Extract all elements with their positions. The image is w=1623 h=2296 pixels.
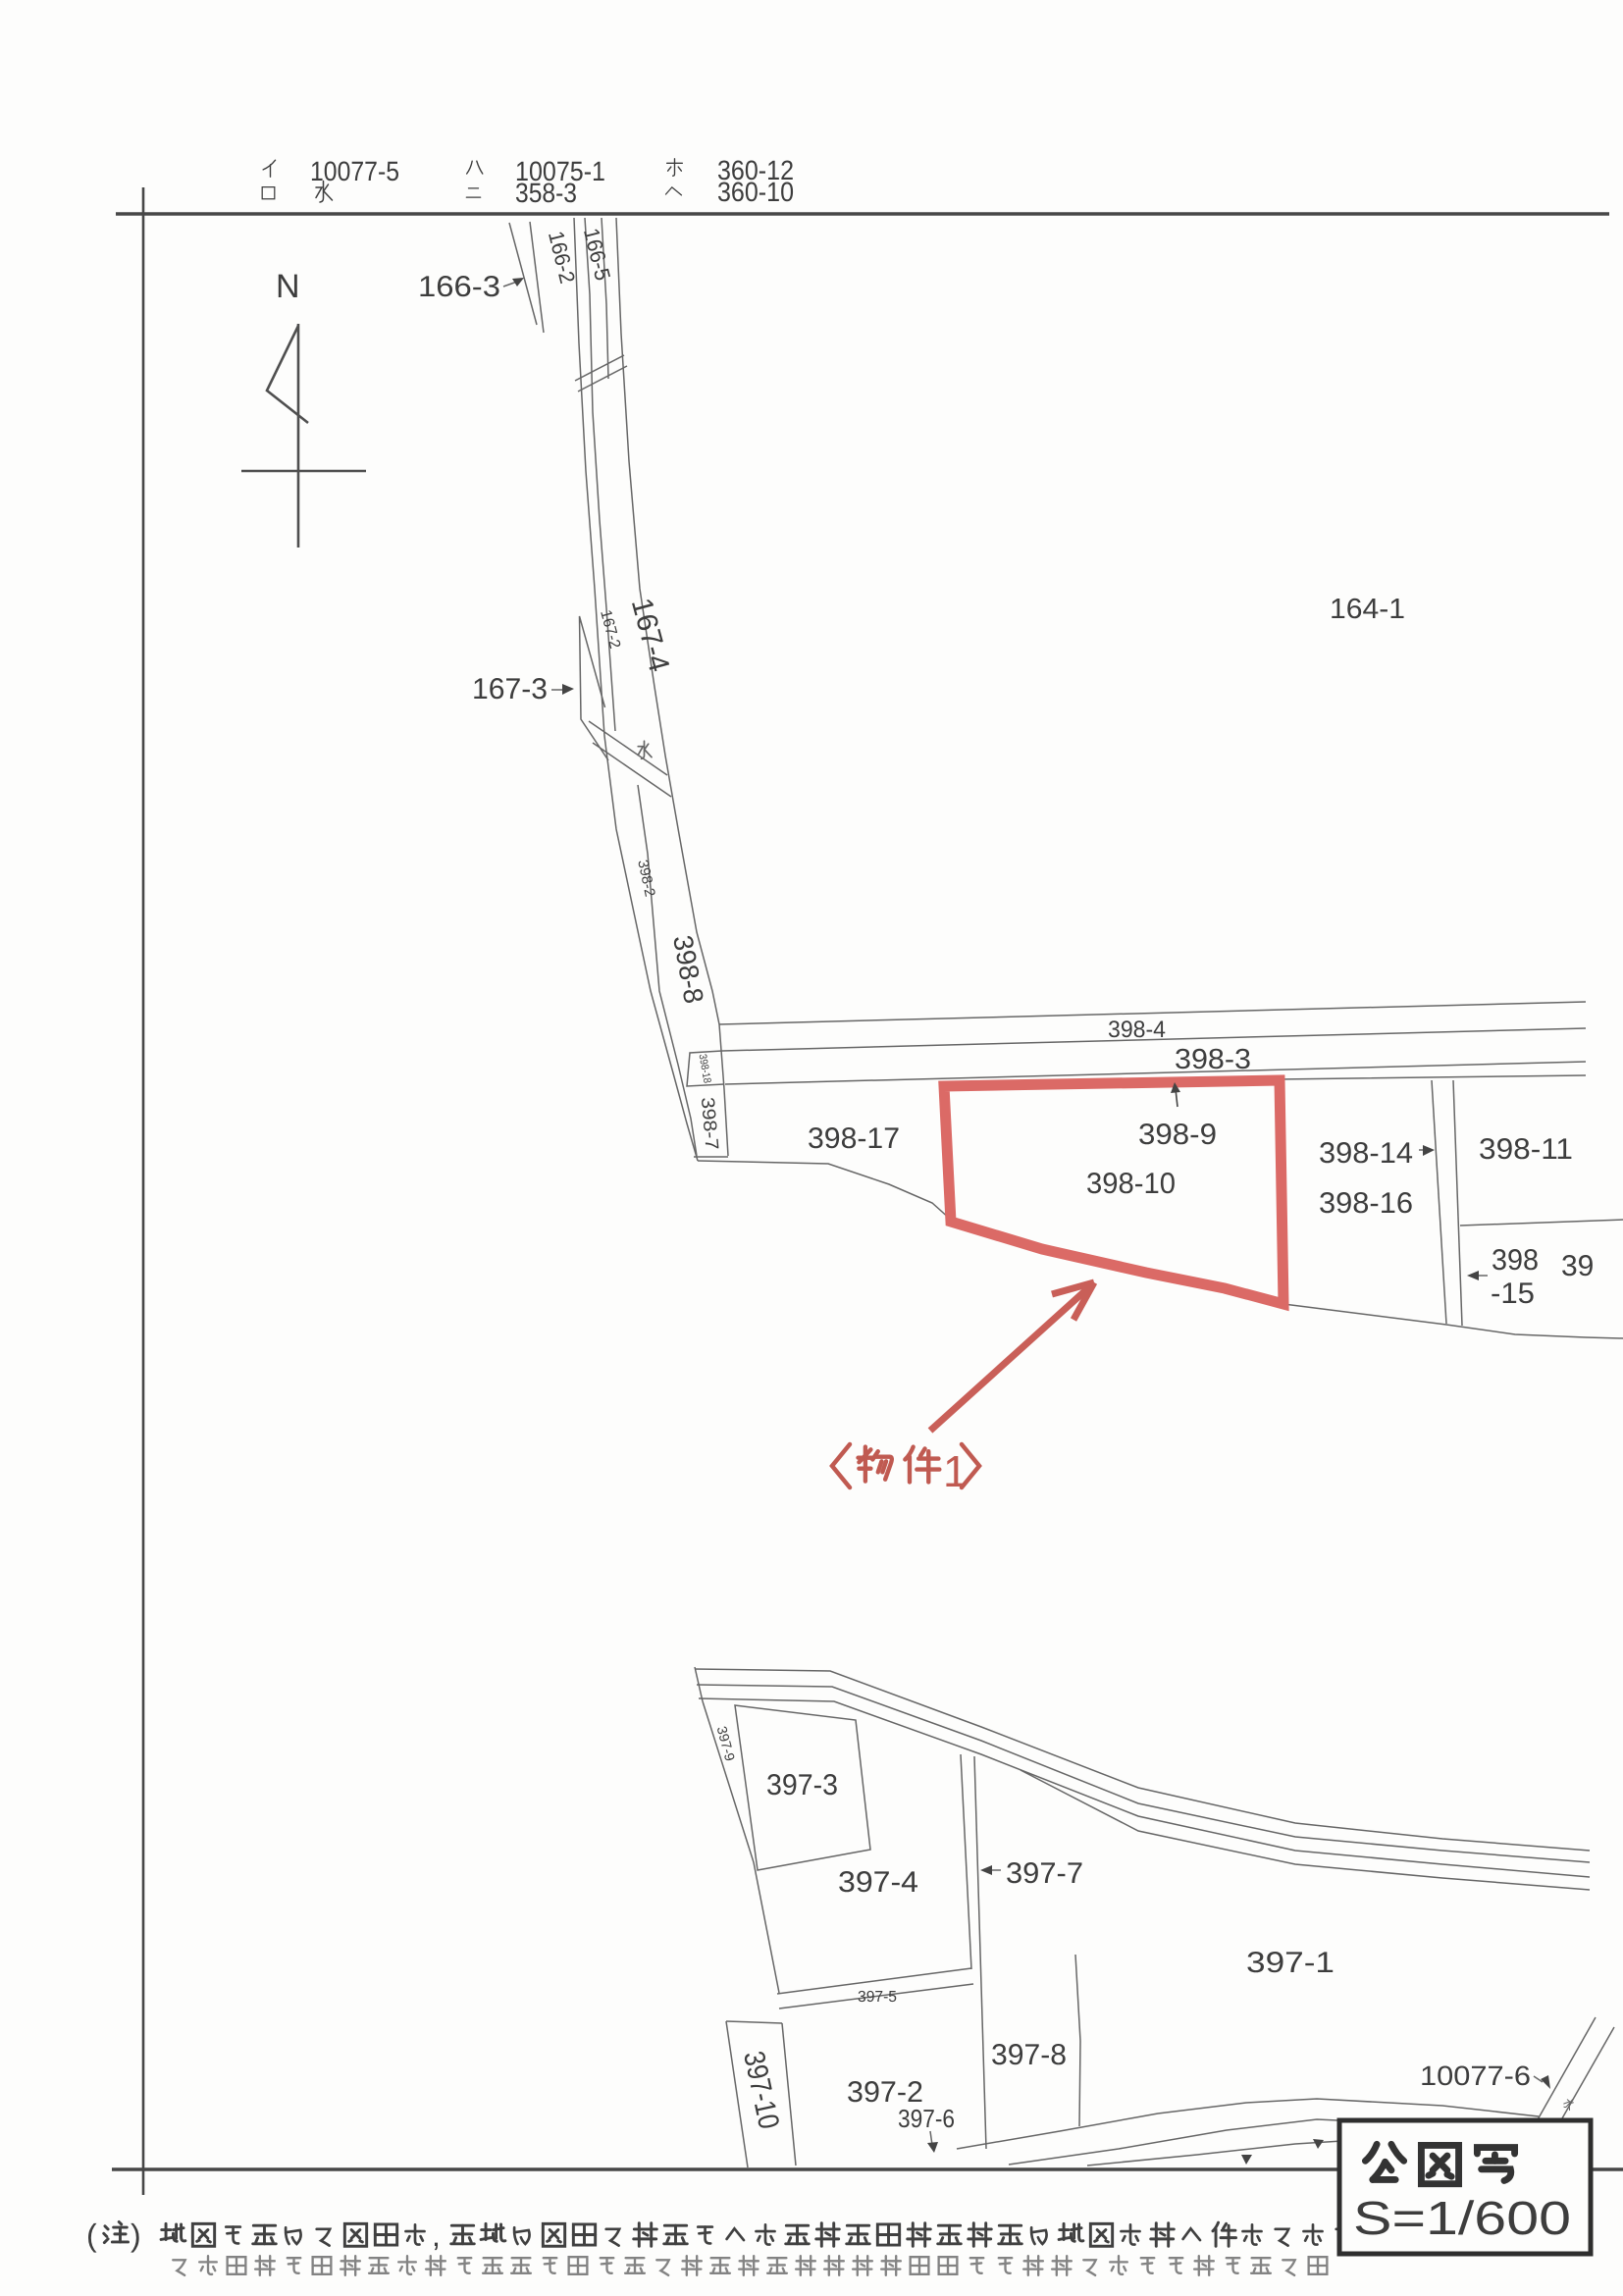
svg-text:S=1/600: S=1/600 — [1353, 2193, 1571, 2245]
svg-text:164-1: 164-1 — [1330, 594, 1405, 625]
svg-text:397-3: 397-3 — [766, 1769, 838, 1801]
svg-text:1: 1 — [943, 1446, 968, 1496]
svg-text:398-17: 398-17 — [808, 1122, 900, 1155]
svg-text:): ) — [131, 2218, 141, 2253]
svg-text:358-3: 358-3 — [515, 178, 577, 208]
svg-text:398-14: 398-14 — [1319, 1137, 1413, 1170]
svg-text:10077-6: 10077-6 — [1420, 2061, 1531, 2091]
svg-text:167-3: 167-3 — [472, 673, 548, 705]
svg-text:398: 398 — [1492, 1244, 1539, 1277]
svg-text:397-6: 397-6 — [898, 2104, 955, 2133]
svg-text:166-3: 166-3 — [418, 271, 500, 303]
svg-text:398-9: 398-9 — [1138, 1119, 1217, 1151]
svg-text:,: , — [432, 2218, 441, 2253]
svg-text:397-1: 397-1 — [1246, 1947, 1335, 1979]
svg-text:397-8: 397-8 — [991, 2039, 1067, 2071]
svg-text:N: N — [276, 268, 300, 305]
svg-text:397-7: 397-7 — [1006, 1857, 1083, 1890]
svg-text:398-4: 398-4 — [1108, 1017, 1166, 1043]
svg-text:39: 39 — [1561, 1250, 1594, 1282]
svg-text:398-11: 398-11 — [1479, 1133, 1573, 1166]
svg-text:398-16: 398-16 — [1319, 1187, 1413, 1220]
svg-text:398-10: 398-10 — [1086, 1168, 1176, 1200]
svg-text:360-10: 360-10 — [717, 177, 794, 207]
svg-text:397-5: 397-5 — [858, 1989, 897, 2006]
svg-text:-15: -15 — [1491, 1278, 1535, 1310]
svg-text:(: ( — [86, 2218, 97, 2253]
svg-text:397-4: 397-4 — [838, 1866, 918, 1899]
svg-text:398-3: 398-3 — [1175, 1044, 1251, 1075]
